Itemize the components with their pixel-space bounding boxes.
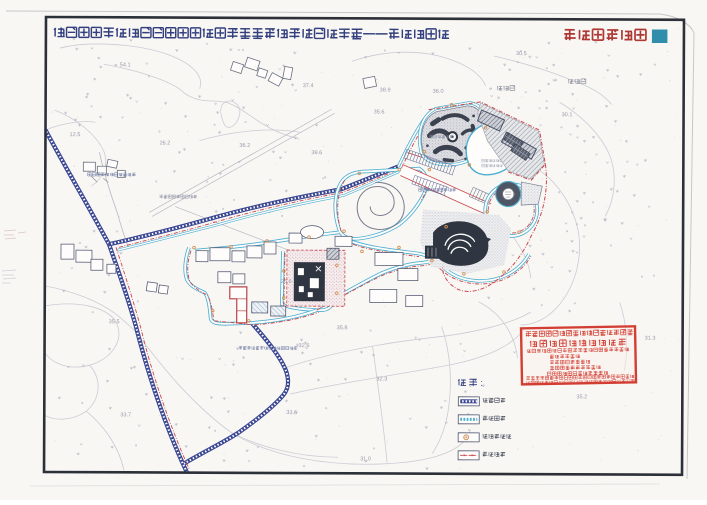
svg-text:38.9: 38.9 xyxy=(380,87,391,93)
svg-text:35.5: 35.5 xyxy=(109,319,120,325)
svg-text:31.3: 31.3 xyxy=(645,336,656,342)
svg-text:31.0: 31.0 xyxy=(360,456,371,462)
svg-text:26.6: 26.6 xyxy=(281,279,292,285)
svg-text:37.4: 37.4 xyxy=(303,83,314,89)
svg-text:36.0: 36.0 xyxy=(433,89,444,95)
svg-text:35.2: 35.2 xyxy=(576,394,587,400)
svg-text:30.5: 30.5 xyxy=(516,51,527,57)
svg-text:27: 27 xyxy=(626,379,632,384)
svg-text:54.1: 54.1 xyxy=(120,62,131,68)
svg-text:32.3: 32.3 xyxy=(376,376,387,382)
svg-text:36.2: 36.2 xyxy=(239,143,250,149)
svg-text:30.1: 30.1 xyxy=(562,112,573,118)
svg-text:26.2: 26.2 xyxy=(159,140,170,146)
svg-text:35.8: 35.8 xyxy=(337,325,348,331)
svg-text:33.7: 33.7 xyxy=(120,412,131,418)
svg-text:A252001488: A252001488 xyxy=(558,379,584,384)
svg-text:11: 11 xyxy=(617,379,622,384)
svg-text:33.6: 33.6 xyxy=(286,410,297,416)
svg-text:39.6: 39.6 xyxy=(311,150,322,156)
svg-text:35.6: 35.6 xyxy=(374,109,385,115)
svg-text::: : xyxy=(480,378,483,388)
svg-text:2029: 2029 xyxy=(603,379,613,384)
svg-text:32.6: 32.6 xyxy=(299,343,310,349)
svg-text:12.5: 12.5 xyxy=(69,132,80,138)
